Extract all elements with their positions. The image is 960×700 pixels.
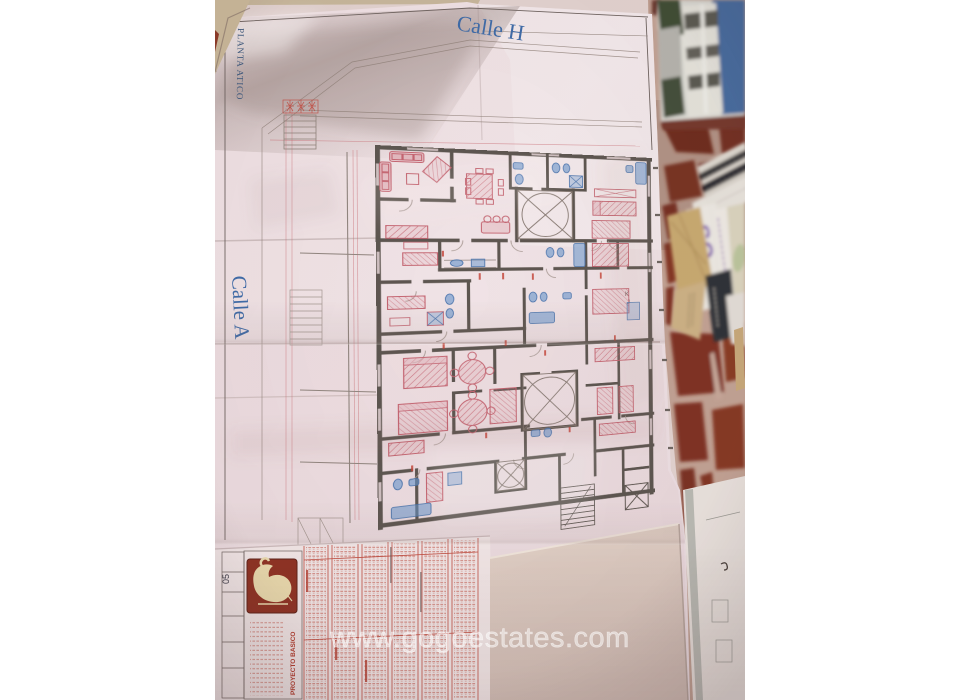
svg-text:Calle A: Calle A (227, 275, 254, 341)
svg-text:PLANTA ATICO: PLANTA ATICO (235, 28, 246, 100)
svg-text:05: 05 (221, 574, 231, 584)
svg-text:PROYECTO BASICO: PROYECTO BASICO (290, 632, 297, 695)
